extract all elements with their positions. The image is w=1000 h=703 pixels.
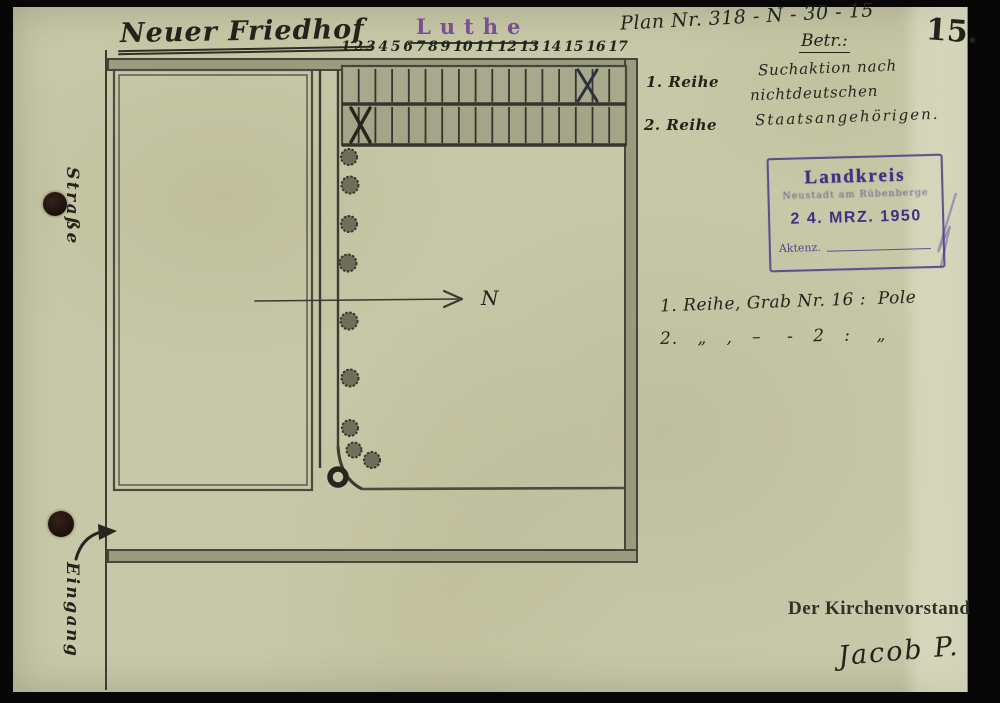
grave-number: 7	[416, 39, 426, 57]
grave-number: 3	[366, 39, 376, 57]
stamp-file-label: Aktenz.	[779, 241, 821, 255]
north-label: N	[481, 286, 499, 310]
stamp-date: 2 4. MRZ. 1950	[770, 207, 942, 229]
grave-number: 2	[353, 39, 363, 57]
row2-label: 2. Reihe	[644, 116, 717, 134]
inner-boundary-line	[362, 488, 626, 489]
grave-number: 14	[542, 39, 561, 57]
grave-number: 4	[378, 39, 388, 57]
well-ring	[330, 469, 346, 485]
bush-icons	[340, 149, 381, 468]
grave-number: 17	[608, 39, 627, 57]
grave-number: 9	[441, 39, 451, 57]
grave-note-line2: 2. „ , – - 2 : „	[660, 325, 887, 349]
church-board-label: Der Kirchenvorstand	[788, 598, 970, 620]
grave-number: 11	[475, 39, 494, 57]
grave-rows	[342, 66, 626, 145]
entrance-label: Eingang	[62, 562, 82, 652]
grave-row-2	[342, 104, 626, 145]
stamp-authority: Landkreis	[769, 164, 942, 190]
grave-number: 10	[453, 39, 472, 57]
grave-number: 13	[520, 39, 539, 57]
grave-number: 16	[586, 39, 605, 57]
grave-row-1	[342, 66, 626, 104]
plan-title: Neuer Friedhof	[118, 14, 371, 55]
betreff-label: Betr.:	[799, 31, 850, 53]
grave-number-scale: 1 2 3 4 5 6 7 8 9 10 11 12 13 14 15 16 1…	[341, 39, 628, 57]
street-label: Straße	[62, 167, 82, 259]
row1-label: 1. Reihe	[646, 73, 719, 91]
grave-number: 1	[341, 39, 351, 57]
grave-number: 15	[564, 39, 583, 57]
grave-number: 12	[497, 39, 516, 57]
left-plot-border	[114, 70, 312, 490]
sheet-number: 15.	[925, 12, 980, 51]
stamp-file-line	[827, 238, 931, 252]
landkreis-stamp: Landkreis Neustadt am Rübenberge 2 4. MR…	[767, 154, 946, 273]
grave-number: 5	[391, 39, 401, 57]
scanned-document: Neuer Friedhof Luthe Plan Nr. 318 - N - …	[0, 0, 1000, 703]
grave-number: 6	[403, 39, 413, 57]
north-arrow	[255, 291, 462, 307]
grave-number: 8	[428, 39, 438, 57]
